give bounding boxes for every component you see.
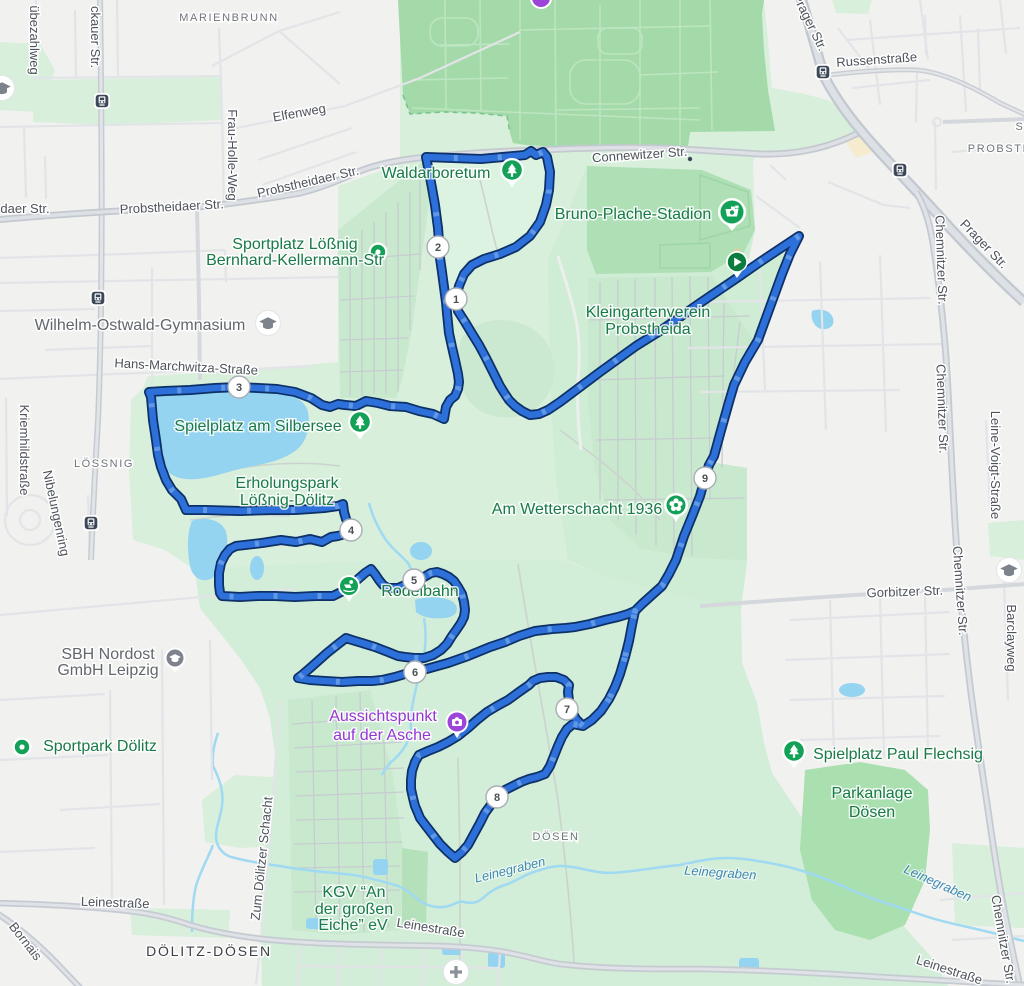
svg-text:Probstheida: Probstheida — [605, 321, 690, 338]
svg-text:Spielplatz am Silbersee: Spielplatz am Silbersee — [174, 418, 341, 435]
svg-text:auf der Asche: auf der Asche — [333, 727, 431, 744]
svg-text:9: 9 — [702, 473, 708, 485]
svg-text:DÖLITZ-DÖSEN: DÖLITZ-DÖSEN — [146, 942, 272, 959]
svg-text:Waldarboretum: Waldarboretum — [382, 165, 491, 182]
svg-text:S: S — [1016, 121, 1024, 133]
svg-text:daer Str.: daer Str. — [0, 201, 49, 216]
svg-text:Aussichtspunkt: Aussichtspunkt — [329, 708, 437, 725]
svg-text:Lößnig-Dölitz: Lößnig-Dölitz — [240, 492, 334, 509]
svg-text:Sportpark Dölitz: Sportpark Dölitz — [43, 738, 157, 755]
svg-text:4: 4 — [348, 525, 355, 537]
svg-text:7: 7 — [564, 704, 570, 716]
svg-text:Bernhard-Kellermann-Str: Bernhard-Kellermann-Str — [206, 252, 385, 269]
svg-text:LÖSSNIG: LÖSSNIG — [74, 458, 134, 470]
svg-text:PROBSTHEIDA: PROBSTHEIDA — [968, 143, 1024, 155]
svg-text:DÖSEN: DÖSEN — [532, 831, 579, 843]
svg-text:Barclayweg: Barclayweg — [1004, 604, 1019, 671]
svg-text:Gorbitzer Str.: Gorbitzer Str. — [866, 583, 943, 601]
svg-text:6: 6 — [412, 667, 418, 679]
svg-text:Wilhelm-Ostwald-Gymnasium: Wilhelm-Ostwald-Gymnasium — [35, 317, 246, 334]
svg-text:MARIENBRUNN: MARIENBRUNN — [179, 12, 279, 24]
svg-text:Erholungspark: Erholungspark — [235, 475, 339, 492]
svg-text:GmbH Leipzig: GmbH Leipzig — [57, 662, 158, 679]
svg-text:Am Wetterschacht 1936: Am Wetterschacht 1936 — [492, 501, 663, 518]
svg-text:Kleingartenverein: Kleingartenverein — [586, 304, 711, 321]
svg-text:Frau-Holle-Weg: Frau-Holle-Weg — [225, 109, 240, 201]
svg-text:SBH Nordost: SBH Nordost — [61, 646, 155, 663]
svg-text:ckauer Str.: ckauer Str. — [88, 6, 103, 68]
svg-text:8: 8 — [494, 792, 500, 804]
svg-text:Parkanlage: Parkanlage — [832, 785, 913, 802]
svg-text:Spielplatz Paul Flechsig: Spielplatz Paul Flechsig — [813, 746, 983, 763]
svg-text:der großen: der großen — [315, 901, 393, 918]
svg-text:Kriemhildstraße: Kriemhildstraße — [17, 404, 32, 495]
svg-text:5: 5 — [411, 575, 417, 587]
svg-text:Chemnitzer Str.: Chemnitzer Str. — [932, 215, 950, 305]
svg-text:Eiche” eV: Eiche” eV — [318, 917, 388, 934]
svg-text:Sportplatz Lößnig: Sportplatz Lößnig — [232, 236, 357, 253]
svg-text:Dösen: Dösen — [849, 804, 895, 821]
svg-text:1: 1 — [453, 294, 459, 306]
svg-text:Bruno-Plache-Stadion: Bruno-Plache-Stadion — [555, 206, 712, 223]
svg-text:3: 3 — [236, 382, 242, 394]
svg-text:Leinestraße: Leinestraße — [81, 894, 150, 911]
svg-text:übezahlweg: übezahlweg — [27, 5, 42, 74]
svg-text:2: 2 — [435, 242, 441, 254]
svg-text:Leine-Voigt-Straße: Leine-Voigt-Straße — [988, 411, 1003, 519]
svg-text:Chemnitzer Str.: Chemnitzer Str. — [933, 364, 951, 454]
svg-text:KGV “An: KGV “An — [322, 884, 385, 901]
